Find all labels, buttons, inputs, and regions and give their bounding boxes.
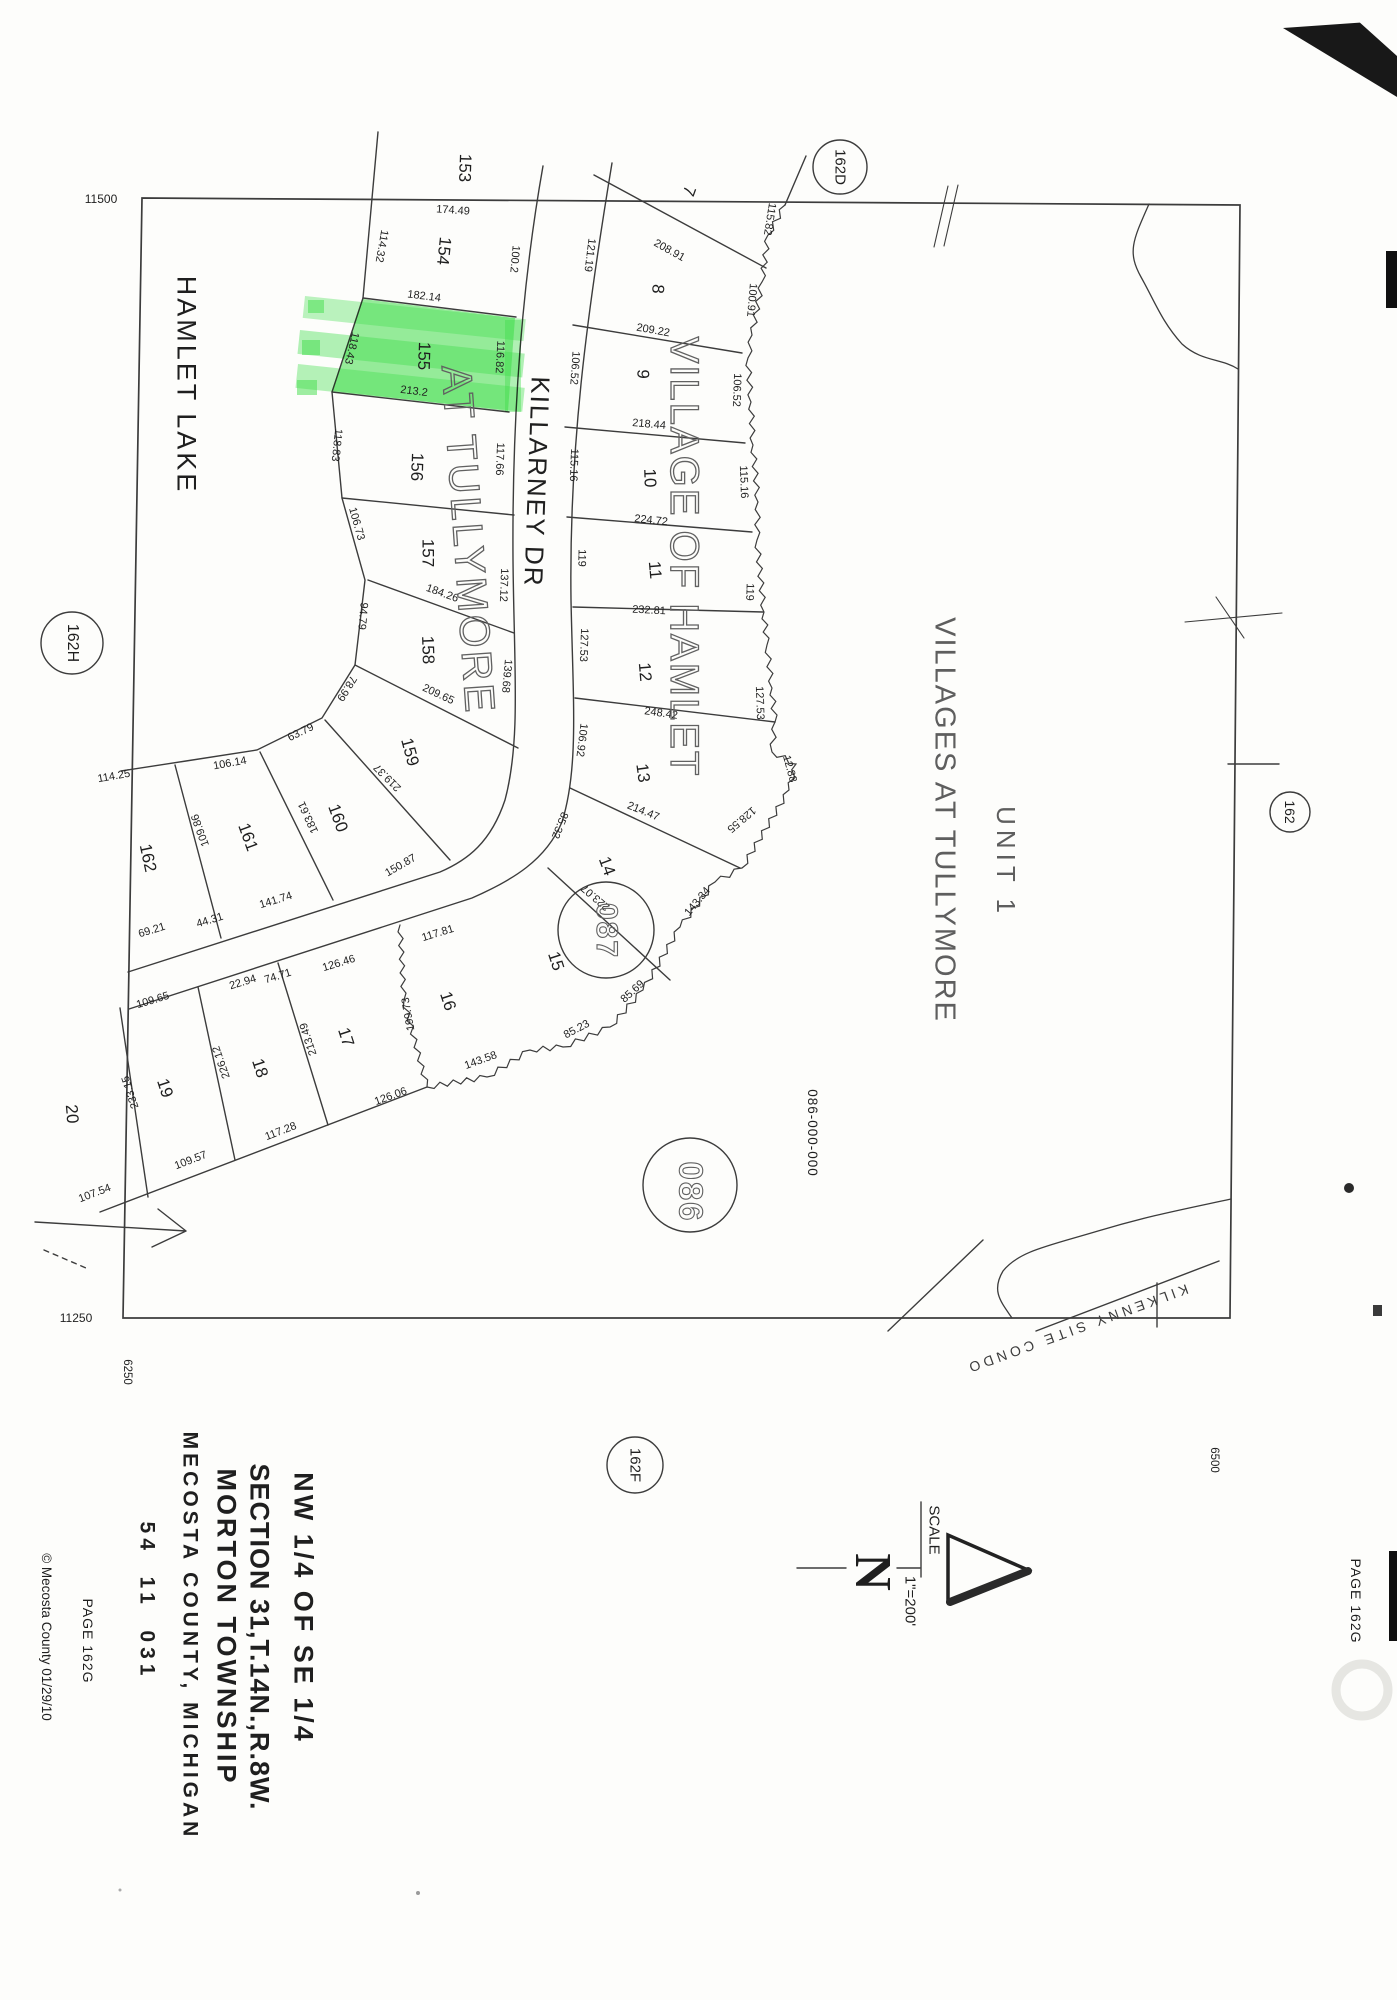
lot-number-13: 13 [633,762,652,783]
kilkenny-site-condo: KILKENNY SITE CONDO [964,1282,1191,1376]
title-section: SECTION 31,T.14N.,R.8W. [246,1463,273,1810]
dim-74-71: 74.71 [263,968,293,987]
dim-137-12: 137.12 [497,568,509,602]
dim-100-2: 100.2 [507,245,520,273]
copyright-note: © Mecosta County 01/29/10 [39,1553,53,1721]
dim-214-47: 214.47 [625,801,660,824]
dim-141-74: 141.74 [258,891,293,911]
dim-199-73: 199.73 [401,996,418,1031]
dim-117-66: 117.66 [493,442,505,475]
title-quarter: NW 1/4 OF SE 1/4 [290,1472,317,1744]
dim-44-31: 44.31 [195,912,225,931]
dim-12-88: 12.88 [780,754,798,783]
lot-number-154: 154 [434,236,454,266]
dim-115-16-e: 115.16 [737,465,749,498]
lot-number-9: 9 [634,369,651,379]
dim-150-87: 150.87 [384,853,419,879]
parcel-circle-087-text: 087 [591,903,621,959]
lot-number-15: 15 [545,949,567,972]
title-parcel-code: 54 11 031 [137,1522,158,1681]
dim-127-53-w: 127.53 [577,628,589,662]
unit-label: UNIT 1 [993,806,1019,918]
lot-number-17: 17 [335,1025,357,1048]
dim-106-52-e: 106.52 [730,373,742,407]
dim-109-86: 109.86 [190,812,212,847]
dim-119-w: 119 [575,549,586,567]
dim-22-94: 22.94 [228,974,258,993]
dim-213-2: 213.2 [400,385,429,399]
page-ref-162h: 162H [64,624,80,662]
north-letter: N [846,1553,898,1591]
dim-143-58: 143.58 [463,1050,498,1072]
page-ref-162: 162 [1283,800,1297,823]
dim-232-81: 232.81 [632,605,666,618]
dim-94-79: 94.79 [355,602,368,630]
dim-126-06: 126.06 [373,1086,408,1108]
dim-85-69: 85.69 [619,979,647,1006]
dim-128-55: 128.55 [725,804,758,834]
parcel-circle-086-text: 086 [675,1161,708,1222]
dim-106-73: 106.73 [346,506,366,541]
dim-107-54: 107.54 [77,1183,112,1205]
dim-109-57: 109.57 [173,1150,208,1172]
grid-coord-11250: 11250 [60,1312,92,1324]
scale-value: 1"=200' [903,1576,918,1626]
lot-number-155: 155 [415,342,433,371]
grid-coord-11500: 11500 [85,193,117,205]
page-label-right: PAGE 162G [1349,1558,1363,1643]
dim-114-25: 114.25 [97,769,131,786]
grid-coord-6500: 6500 [1207,1447,1219,1473]
dim-115-82: 115.82 [761,202,777,236]
scanned-plat-page: 1531541551561571581591601611627891011121… [0,0,1397,2000]
lot-number-10: 10 [641,468,659,488]
dim-226-12: 226.12 [211,1044,232,1079]
dim-143-34: 143.34 [683,886,713,919]
lot-number-160: 160 [325,802,351,834]
dim-63-79: 63.79 [286,722,316,744]
dim-106-52-w: 106.52 [567,351,580,385]
title-county: MECOSTA COUNTY, MICHIGAN [180,1432,201,1841]
dim-127-53-e: 127.53 [753,686,765,720]
parcel-id: 086-000-000 [805,1089,819,1177]
title-township: MORTON TOWNSHIP [213,1468,240,1785]
dim-121-19: 121.19 [581,238,596,273]
dim-183-61: 183.61 [297,799,321,834]
lot-number-12: 12 [636,662,655,682]
lot-number-7: 7 [679,184,698,199]
dim-117-28: 117.28 [264,1121,299,1143]
dim-174-49: 174.49 [436,204,470,217]
dim-213-49: 213.49 [299,1021,320,1056]
dim-100-91: 100.91 [744,283,758,317]
dim-219-37: 219.37 [372,761,404,793]
subdivision-village-of-hamlet: VILLAGE OF HAMLET [664,337,704,778]
dim-126-46: 126.46 [321,954,356,974]
dim-116-82: 116.82 [493,340,506,373]
lot-number-161: 161 [235,821,261,853]
lot-number-20: 20 [63,1104,82,1124]
scale-word: SCALE [927,1505,942,1554]
page-ref-162d: 162D [833,149,848,185]
dim-78-99: 78.99 [334,673,358,702]
lot-number-16: 16 [437,989,459,1012]
labels-layer: 1531541551561571581591601611627891011121… [0,0,1397,2000]
lot-number-18: 18 [249,1056,271,1079]
street-killarney-dr: KILLARNEY DR [520,376,553,588]
dim-209-65: 209.65 [420,683,455,707]
dim-106-14: 106.14 [212,756,247,773]
dim-182-14: 182.14 [407,289,442,304]
dim-208-91: 208.91 [652,238,687,264]
dim-85-32: 85.32 [549,810,570,840]
lot-number-156: 156 [408,453,426,482]
lot-number-157: 157 [420,539,437,567]
subdivision-villages-at-tullymore: VILLAGES AT TULLYMORE [930,617,959,1023]
water-hamlet-lake: HAMLET LAKE [173,276,200,495]
lot-number-162: 162 [137,842,160,873]
dim-115-16-w: 115.16 [567,448,579,481]
dim-117-81: 117.81 [421,924,456,944]
lot-number-14: 14 [596,854,618,878]
lot-number-159: 159 [398,736,422,768]
page-ref-162f: 162F [628,1448,643,1482]
dim-106-92: 106.92 [573,723,588,758]
lot-number-158: 158 [419,636,437,665]
subdivision-at-tullymore: AT TULLYMORE [435,364,501,716]
dim-85-23: 85.23 [562,1019,591,1042]
lot-number-8: 8 [649,284,667,295]
lot-number-19: 19 [154,1076,176,1099]
dim-119-e: 119 [743,583,755,601]
dim-114-32: 114.32 [373,229,390,263]
dim-118-43: 118.43 [342,331,360,365]
page-label-left: PAGE 162G [81,1598,95,1683]
dim-69-21: 69.21 [137,922,167,941]
dim-109-65: 109.65 [135,991,170,1011]
dim-118-83: 118.83 [329,428,343,462]
dim-233-15: 233.15 [121,1074,142,1109]
grid-coord-6250: 6250 [120,1359,132,1385]
lot-number-153: 153 [456,154,474,183]
